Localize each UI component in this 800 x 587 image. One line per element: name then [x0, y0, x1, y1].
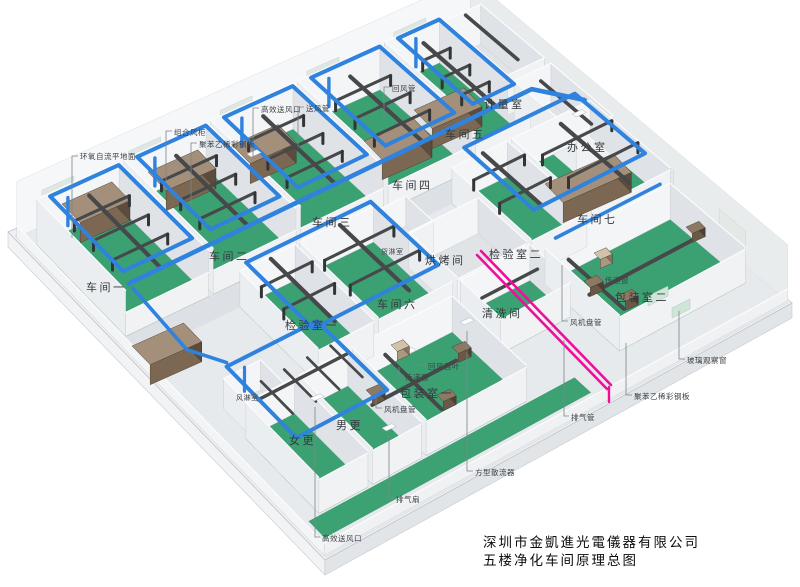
callout-return-louver: 回风百叶 [428, 361, 460, 372]
room-label-metering-room: 计量室 [484, 96, 525, 112]
callout-supply-duct: 送风管 [306, 103, 330, 114]
room-label-office: 办公室 [567, 139, 608, 155]
room-label-baking-room: 烘烤间 [425, 252, 466, 268]
callout-return-duct: 回风管 [392, 83, 416, 94]
room-label-air-shower-room: 风淋室 [236, 393, 259, 403]
room-label-workshop-4: 车间四 [392, 177, 433, 193]
callout-epoxy-floor: 环氧自流平地面 [80, 151, 136, 162]
callout-steel-panel-2: 聚苯乙稀彩钢板 [634, 391, 690, 402]
room-label-packing-room-2: 包装室二 [615, 289, 669, 305]
callout-hepa-outlet-1: 高效送风口 [261, 104, 301, 115]
callout-square-diffuser: 方型散流器 [475, 467, 515, 478]
callout-fan-coil-2: 风机盘管 [570, 317, 602, 328]
room-label-workshop-3: 车间三 [312, 214, 353, 230]
room-label-workshop-1: 车间一 [86, 279, 127, 295]
drawing-title: 五楼净化车间原理总图 [483, 549, 638, 569]
cleanroom-isometric-diagram: 车间一 车间二 车间三 车间四 车间五 计量室 办公室 车间七 检验室二 烘烤间… [0, 0, 800, 587]
room-label-cleaning-room: 清洗间 [482, 305, 523, 321]
callout-pass-window-1: 传递窗 [405, 372, 429, 383]
room-label-workshop-5: 车间五 [445, 126, 486, 142]
callout-pass-window-2: 传递窗 [605, 275, 629, 286]
room-label-cargo-shower-room: 货淋室 [381, 247, 404, 257]
callout-exhaust-duct: 排气管 [571, 412, 595, 423]
callout-steel-panel-1: 聚苯乙稀彩钢板 [199, 139, 255, 150]
room-label-packing-room-1: 包装室一 [400, 385, 454, 401]
callout-hepa-outlet-2: 高效送风口 [322, 533, 362, 544]
room-label-women-changing: 女更 [289, 432, 316, 448]
room-label-workshop-7: 车间七 [577, 211, 618, 227]
callout-glass-window: 玻璃观察窗 [687, 355, 727, 366]
company-name: 深圳市金凱進光電儀器有限公司 [483, 531, 700, 551]
room-label-inspection-room-2: 检验室二 [489, 246, 543, 262]
room-label-men-changing: 男更 [336, 417, 363, 433]
room-label-inspection-room-1: 检验室一 [285, 317, 339, 333]
callout-fan-coil-1: 风机盘管 [384, 404, 416, 415]
room-label-workshop-2: 车间二 [209, 248, 250, 264]
callout-combined-ahu: 组合风柜 [174, 127, 206, 138]
callout-exhaust-fan: 排气扇 [396, 494, 420, 505]
room-label-workshop-6: 车间六 [377, 296, 418, 312]
